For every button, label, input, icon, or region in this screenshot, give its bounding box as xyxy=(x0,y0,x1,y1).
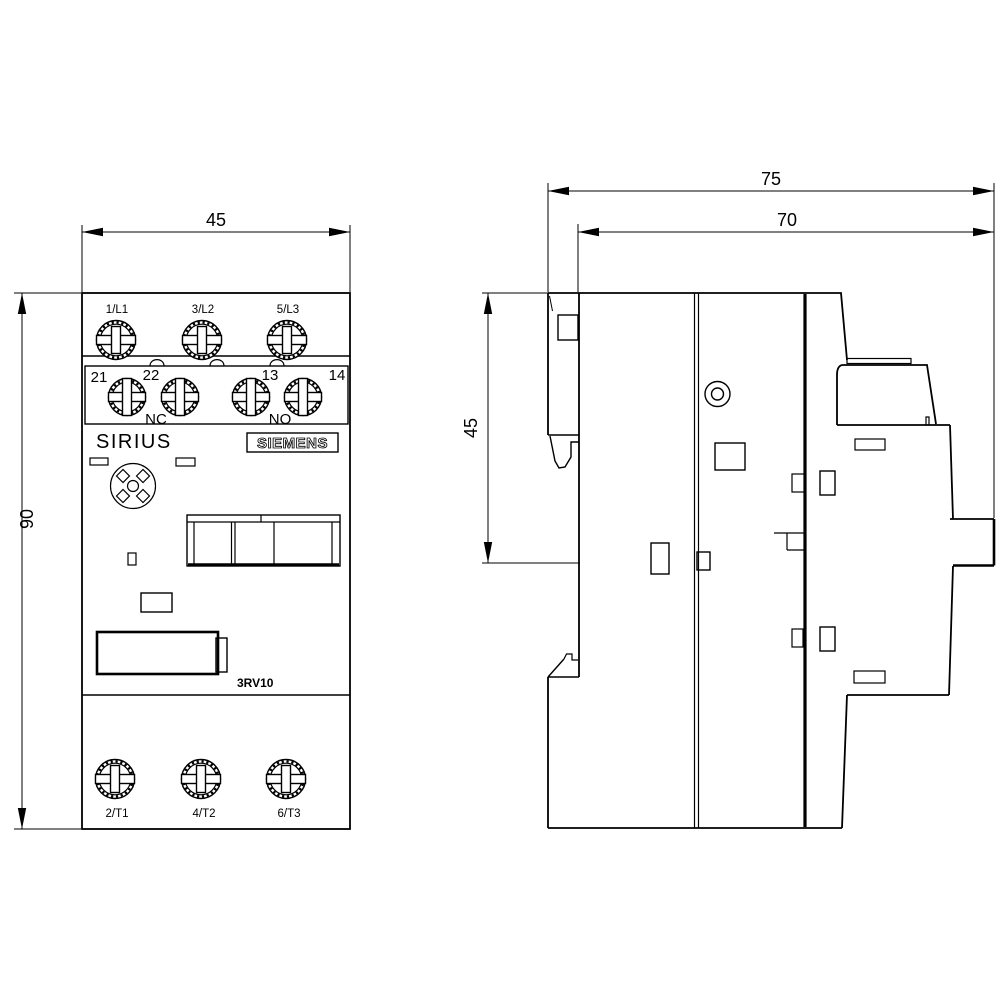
dim-extension-lines xyxy=(82,225,350,292)
front-height-dimension: 90 xyxy=(14,293,81,829)
terminal-label-1L1: 1/L1 xyxy=(106,304,128,316)
housing-tabs xyxy=(150,360,284,366)
terminal-screw-2T1 xyxy=(96,760,135,799)
actuator-top-band xyxy=(187,515,340,522)
front-view: 45 90 1/L1 3/L2 5/L3 21 22 13 xyxy=(14,210,350,829)
aux-terminal-14: 14 xyxy=(329,367,346,384)
aux-terminal-13: 13 xyxy=(262,367,279,384)
terminal-label-3L2: 3/L2 xyxy=(192,304,214,316)
switch-actuator-window xyxy=(187,515,340,566)
terminal-screw-3L2 xyxy=(183,321,222,360)
front-height-dim-label: 90 xyxy=(17,509,37,529)
test-button xyxy=(128,553,136,565)
label-window-frame xyxy=(97,632,218,674)
terminal-label-2T1: 2/T1 xyxy=(105,808,128,820)
top-edge xyxy=(548,293,847,360)
logo-text: SIEMENS xyxy=(257,435,328,452)
terminal-label-4T2: 4/T2 xyxy=(192,808,215,820)
front-body-outline xyxy=(82,293,350,829)
marker-slot-right xyxy=(176,458,195,466)
aux-terminal-22: 22 xyxy=(143,367,160,384)
knob-center xyxy=(128,481,139,492)
aux-screw-14 xyxy=(285,379,322,416)
current-setting-knob xyxy=(111,464,156,509)
knob-lobe-nw xyxy=(117,470,130,483)
latch-detail-lower-left xyxy=(792,629,803,647)
dim-arrow-bottom xyxy=(484,542,492,563)
upper-clip-chamfer xyxy=(550,296,553,311)
side-overall-depth-dimension: 75 xyxy=(548,169,994,518)
lower-latch-hook xyxy=(564,654,578,660)
marker-slot-left xyxy=(90,458,108,465)
vent-slot-upper xyxy=(855,439,885,450)
front-width-dimension: 45 xyxy=(82,210,350,292)
dim-arrow-top xyxy=(18,293,26,314)
technical-drawing-canvas: 45 90 1/L1 3/L2 5/L3 21 22 13 xyxy=(0,0,1000,1000)
vent-slot-lower xyxy=(854,671,885,683)
drawing-svg: 45 90 1/L1 3/L2 5/L3 21 22 13 xyxy=(0,0,1000,1000)
side-body-outline xyxy=(548,293,994,828)
terminal-screw-6T3 xyxy=(267,760,306,799)
dim-arrow-right xyxy=(973,228,994,236)
dim-arrow-top xyxy=(484,293,492,314)
housing-screw-outer xyxy=(705,382,730,407)
terminal-label-5L3: 5/L3 xyxy=(277,304,299,316)
aux-label-nc: NC xyxy=(145,411,167,428)
dim-arrow-left xyxy=(578,228,599,236)
terminal-label-6T3: 6/T3 xyxy=(277,808,300,820)
switch-knob-profile xyxy=(837,365,950,425)
side-clip-height-dimension: 45 xyxy=(461,293,580,563)
aux-screw-21 xyxy=(109,379,146,416)
terminal-screw-5L3 xyxy=(268,321,307,360)
logo-plate: SIEMENS xyxy=(247,433,338,452)
side-body-depth-dimension: 70 xyxy=(578,210,994,292)
housing-recess-upper xyxy=(715,443,745,470)
load-terminals: 2/T1 4/T2 6/T3 xyxy=(96,760,306,821)
dim-arrow-left xyxy=(82,228,103,236)
latch-detail-upper-left xyxy=(792,474,805,492)
housing-screw-inner xyxy=(712,388,724,400)
label-window xyxy=(97,632,227,674)
upper-clip-hook xyxy=(550,436,579,468)
reset-window xyxy=(141,593,172,612)
actuator-frame xyxy=(187,515,340,566)
knob-lobe-se xyxy=(137,490,150,503)
knob-notch xyxy=(926,417,929,425)
dim-arrow-bottom xyxy=(18,808,26,829)
clip-slot-hole xyxy=(558,315,578,340)
latch-detail-upper-right xyxy=(820,471,835,495)
dim-extension-lines xyxy=(548,183,994,518)
front-lower-edge xyxy=(842,566,953,828)
front-upper-edge xyxy=(950,425,953,519)
terminal-screw-1L1 xyxy=(97,321,136,360)
aux-label-no: NO xyxy=(269,411,292,428)
terminal-block-front xyxy=(953,519,994,566)
knob-lobe-ne xyxy=(137,470,150,483)
side-view: 75 70 45 xyxy=(461,169,994,828)
aux-contact-block: 21 22 13 14 NC NO xyxy=(91,367,346,428)
dim-arrow-right xyxy=(973,187,994,195)
terminal-screw-4T2 xyxy=(182,760,221,799)
aux-terminal-21: 21 xyxy=(91,369,108,386)
dim-arrow-right xyxy=(329,228,350,236)
model-text: 3RV10 xyxy=(237,676,274,690)
line-terminals: 1/L1 3/L2 5/L3 xyxy=(97,304,307,360)
side-clip-height-label: 45 xyxy=(461,418,481,438)
actuator-dividers xyxy=(194,522,332,566)
aux-screw-13 xyxy=(233,379,270,416)
step-detail xyxy=(774,533,804,550)
dim-extension-lines xyxy=(482,293,580,563)
housing-recess-mid-left xyxy=(651,543,669,574)
side-body-depth-label: 70 xyxy=(777,210,797,230)
aux-screw-22 xyxy=(162,379,199,416)
knob-lobe-sw xyxy=(117,490,130,503)
front-width-dim-label: 45 xyxy=(206,210,226,230)
latch-detail-lower-right xyxy=(820,627,835,651)
side-details xyxy=(558,294,885,829)
side-overall-depth-label: 75 xyxy=(761,169,781,189)
dim-arrow-left xyxy=(548,187,569,195)
knob-cap-plate xyxy=(847,359,911,364)
lower-rail-latch xyxy=(548,659,579,677)
brand-text: SIRIUS xyxy=(96,431,172,453)
dim-extension-lines xyxy=(14,293,81,829)
